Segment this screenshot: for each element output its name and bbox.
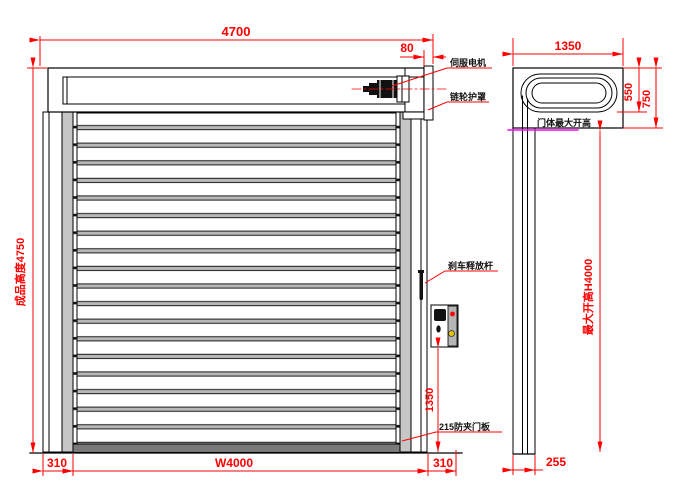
label-max-opening-line: 门体最大开高	[537, 117, 591, 128]
label-sprocket-guard: 链轮护罩	[450, 91, 486, 102]
leader-brake-release	[425, 271, 498, 283]
dim-left-margin: 310	[47, 456, 67, 470]
label-brake-release: 刹车释放杆	[448, 260, 493, 271]
dim-box-to-floor: 1350	[424, 388, 436, 412]
dim-right-margin: 310	[433, 456, 453, 470]
drawing-canvas: 4700 80 成品高度4750 1350 310 W4000 310 1350…	[0, 0, 680, 489]
front-view	[30, 66, 462, 453]
slat-end-ticks-right	[396, 120, 400, 444]
dim-total-width: 4700	[222, 24, 251, 39]
slat-end-ticks-left	[73, 120, 77, 444]
button-yellow-dot	[449, 331, 455, 337]
leader-sprocket-guard	[428, 102, 489, 110]
motor-bracket-step	[403, 112, 424, 119]
door-technical-drawing: 4700 80 成品高度4750 1350 310 W4000 310 1350…	[0, 0, 680, 489]
emergency-stop-button	[434, 309, 446, 321]
dim-max-opening-height: 最大开高H4000	[581, 259, 595, 335]
left-guide-rail	[62, 112, 73, 452]
dim-box-inner-height: 550	[623, 83, 635, 101]
key-switch	[436, 325, 440, 332]
left-wall-pillar	[43, 112, 62, 452]
dim-product-height: 成品高度4750	[13, 238, 27, 306]
dim-bracket-width: 80	[400, 41, 414, 55]
indicator-red-dot	[450, 312, 455, 317]
dim-side-depth: 1350	[555, 39, 582, 53]
dim-column-depth: 255	[546, 455, 566, 469]
right-guide-rail	[400, 112, 411, 452]
control-box	[431, 305, 458, 347]
label-door-panel: 215防夹门板	[439, 421, 491, 432]
bottom-beam	[73, 444, 400, 453]
label-servo-motor: 伺服电机	[449, 57, 486, 68]
dim-box-total-height: 750	[641, 90, 653, 108]
door-curtain	[77, 113, 396, 444]
dim-opening-width: W4000	[215, 456, 253, 470]
